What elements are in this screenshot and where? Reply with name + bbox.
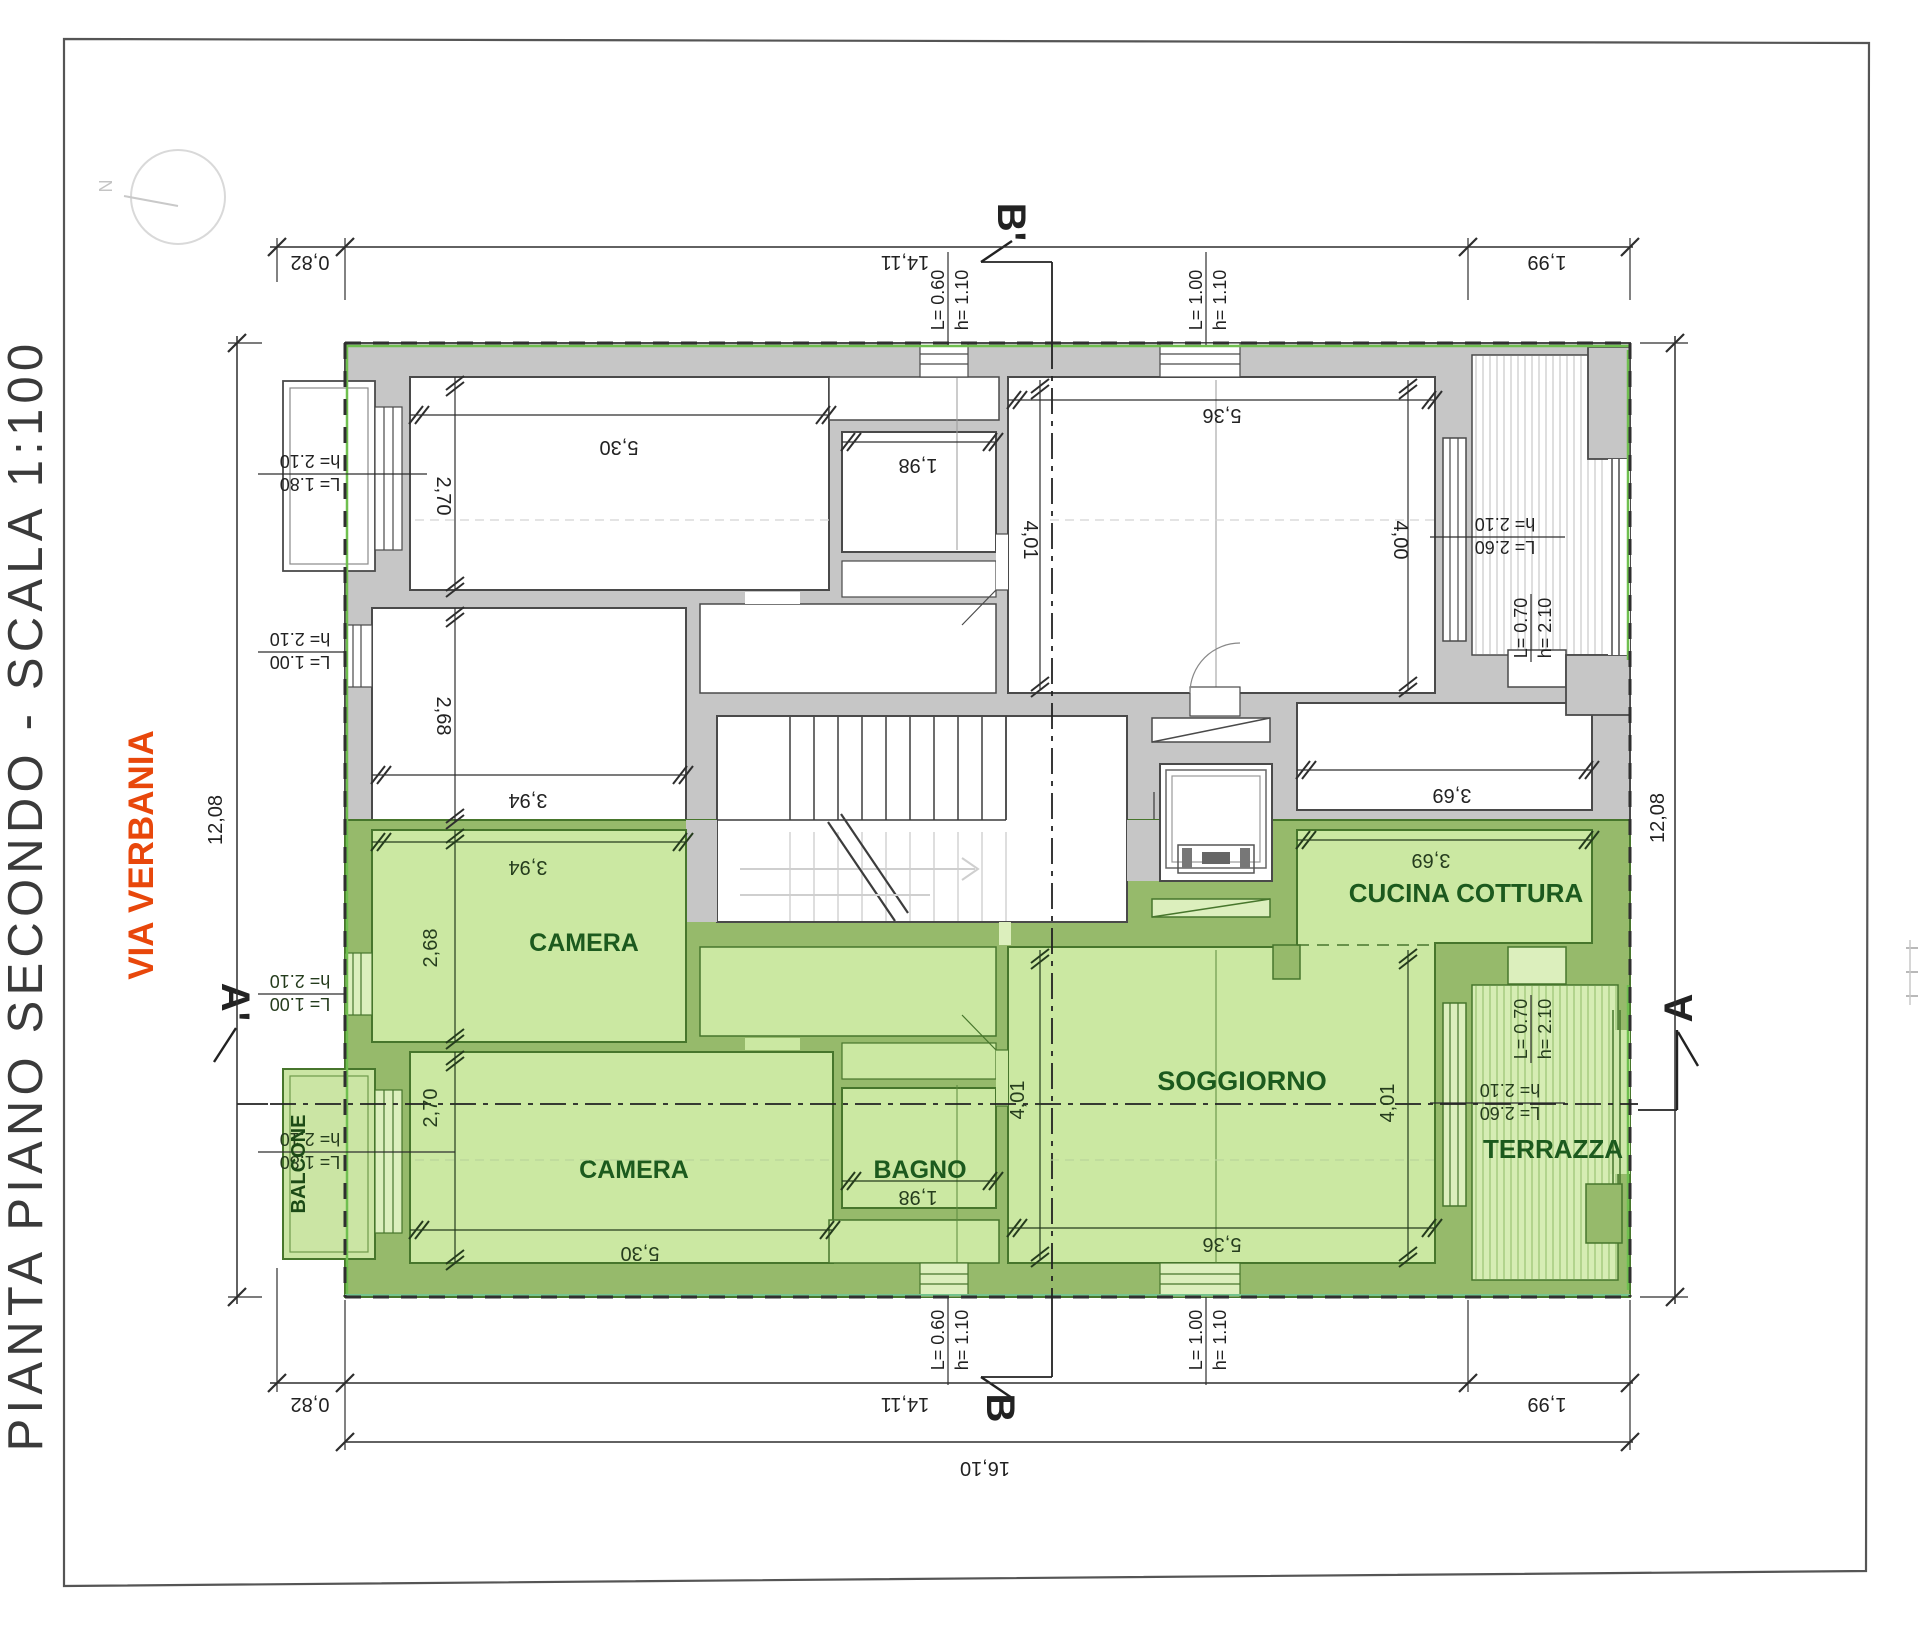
svg-text:BALCONE: BALCONE xyxy=(288,1115,310,1214)
svg-text:TERRAZZA: TERRAZZA xyxy=(1483,1134,1623,1164)
svg-text:14,11: 14,11 xyxy=(881,251,930,273)
svg-text:h= 2.10: h= 2.10 xyxy=(1535,598,1555,659)
svg-text:1,98: 1,98 xyxy=(899,454,938,476)
svg-text:CAMERA: CAMERA xyxy=(529,929,639,957)
svg-text:N: N xyxy=(96,180,116,193)
svg-text:CUCINA COTTURA: CUCINA COTTURA xyxy=(1349,878,1584,908)
svg-text:12,08: 12,08 xyxy=(205,795,227,845)
svg-text:B': B' xyxy=(989,203,1033,241)
svg-text:3,69: 3,69 xyxy=(1433,784,1472,806)
svg-text:h= 2.10: h= 2.10 xyxy=(1535,999,1555,1060)
svg-text:4,01: 4,01 xyxy=(1007,1081,1029,1120)
svg-text:L= 0.70: L= 0.70 xyxy=(1511,999,1531,1060)
svg-text:0,82: 0,82 xyxy=(291,1393,330,1415)
svg-text:A: A xyxy=(1657,994,1701,1023)
svg-text:SOGGIORNO: SOGGIORNO xyxy=(1157,1066,1327,1096)
svg-text:h= 2.10: h= 2.10 xyxy=(1475,514,1536,534)
svg-text:3,94: 3,94 xyxy=(509,789,548,811)
svg-text:2,70: 2,70 xyxy=(432,477,454,516)
svg-text:5,30: 5,30 xyxy=(600,436,639,458)
svg-text:L= 1.00: L= 1.00 xyxy=(270,994,331,1014)
svg-text:1,99: 1,99 xyxy=(1528,251,1567,273)
svg-text:L= 2.60: L= 2.60 xyxy=(1475,537,1536,557)
svg-text:L= 1.00: L= 1.00 xyxy=(270,652,331,672)
svg-text:5,36: 5,36 xyxy=(1203,1233,1242,1255)
svg-text:L= 1.80: L= 1.80 xyxy=(280,474,341,494)
svg-text:L= 0.60: L= 0.60 xyxy=(928,270,948,331)
svg-text:L= 1.00: L= 1.00 xyxy=(1186,270,1206,331)
svg-text:L= 0.60: L= 0.60 xyxy=(928,1310,948,1371)
svg-text:12,08: 12,08 xyxy=(1647,793,1669,843)
svg-text:BAGNO: BAGNO xyxy=(873,1156,966,1184)
svg-text:L= 0.70: L= 0.70 xyxy=(1511,598,1531,659)
svg-text:1,98: 1,98 xyxy=(899,1186,938,1208)
svg-text:h= 1.10: h= 1.10 xyxy=(952,1310,972,1371)
svg-text:3,94: 3,94 xyxy=(509,856,548,878)
svg-text:L= 1.00: L= 1.00 xyxy=(1186,1310,1206,1371)
svg-text:14,11: 14,11 xyxy=(881,1393,930,1415)
svg-text:h= 2.10: h= 2.10 xyxy=(270,971,331,991)
svg-text:5,30: 5,30 xyxy=(621,1242,660,1264)
svg-text:2,68: 2,68 xyxy=(420,929,442,968)
svg-text:h= 2.10: h= 2.10 xyxy=(270,629,331,649)
svg-text:h= 1.10: h= 1.10 xyxy=(1210,270,1230,331)
svg-text:B: B xyxy=(978,1394,1022,1423)
svg-text:0,82: 0,82 xyxy=(291,251,330,273)
svg-text:h= 2.10: h= 2.10 xyxy=(280,451,341,471)
svg-text:2,68: 2,68 xyxy=(432,697,454,736)
svg-text:A': A' xyxy=(213,983,257,1021)
svg-text:VIA VERBANIA: VIA VERBANIA xyxy=(122,730,161,980)
svg-text:L= 2.60: L= 2.60 xyxy=(1480,1103,1541,1123)
svg-text:h= 1.10: h= 1.10 xyxy=(952,270,972,331)
svg-text:16,10: 16,10 xyxy=(960,1457,1010,1479)
svg-text:3,69: 3,69 xyxy=(1412,849,1451,871)
svg-text:2,70: 2,70 xyxy=(420,1089,442,1128)
svg-text:4,00: 4,00 xyxy=(1389,521,1411,560)
svg-text:PIANTA PIANO SECONDO - SCALA: PIANTA PIANO SECONDO - SCALA 1:100 xyxy=(0,339,53,1452)
svg-text:1,99: 1,99 xyxy=(1528,1393,1567,1415)
svg-text:4,01: 4,01 xyxy=(1377,1084,1399,1123)
svg-text:5,36: 5,36 xyxy=(1203,404,1242,426)
svg-text:h= 1.10: h= 1.10 xyxy=(1210,1310,1230,1371)
svg-text:4,01: 4,01 xyxy=(1019,521,1041,560)
svg-text:h= 2.10: h= 2.10 xyxy=(1480,1080,1541,1100)
